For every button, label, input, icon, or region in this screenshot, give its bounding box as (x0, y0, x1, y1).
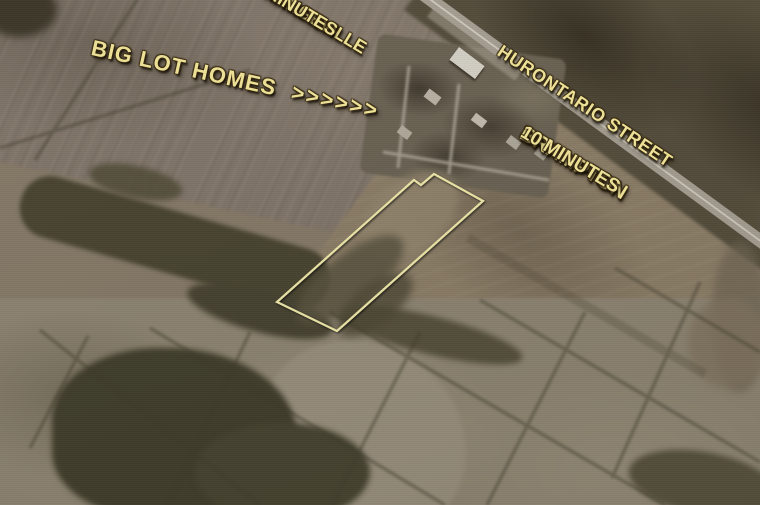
aerial-photo: BIG LOT HOMES>>>>>> <<<<<<<<<< ORANGEVIL… (0, 0, 760, 505)
photo-grain (0, 0, 760, 505)
